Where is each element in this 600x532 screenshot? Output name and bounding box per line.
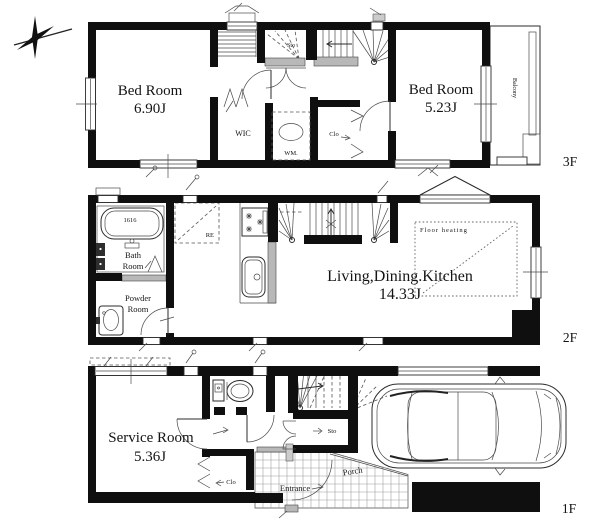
floor-plan-canvas: Balcony Sto bbox=[0, 0, 600, 532]
powder-sink-icon bbox=[95, 306, 123, 335]
floor-label-2f: 2F bbox=[563, 330, 578, 345]
entrance-label: Entrance bbox=[280, 483, 310, 493]
floor-label-3f: 3F bbox=[563, 154, 578, 169]
washing-machine-icon: WM. bbox=[272, 112, 310, 160]
bath-room-label-2: Room bbox=[123, 261, 144, 271]
floor-plan-image: Balcony Sto bbox=[0, 0, 600, 532]
refrigerator-space: RE bbox=[175, 203, 219, 243]
porch-label: Porch bbox=[342, 464, 364, 477]
door-swing bbox=[224, 68, 390, 158]
floor-2f-plan: 1616 RE bbox=[88, 165, 578, 351]
closet-label-3f: Clo bbox=[329, 131, 338, 138]
closet-label-1f: Clo bbox=[226, 479, 235, 486]
floor-label-1f: 1F bbox=[562, 501, 577, 516]
floor-1f-plan: Service Room 5.36J Clo Sto Entrance Porc… bbox=[88, 350, 577, 518]
storage-label-3f: Sto bbox=[287, 43, 295, 49]
bathtub-size-label: 1616 bbox=[124, 217, 138, 224]
washing-machine-label: WM. bbox=[284, 150, 298, 157]
north-arrow-icon bbox=[14, 16, 72, 59]
toilet-icon bbox=[213, 380, 253, 402]
service-room-size: 5.36J bbox=[134, 449, 166, 465]
floor-heating-label: Floor heating bbox=[420, 227, 468, 234]
refrigerator-label: RE bbox=[206, 232, 214, 239]
storage-sto-3f: Sto bbox=[267, 30, 299, 59]
powder-room-label-1: Powder bbox=[125, 293, 151, 303]
bedroom-right-name: Bed Room bbox=[409, 82, 474, 98]
balcony: Balcony bbox=[490, 26, 540, 165]
bath-room-label-1: Bath bbox=[125, 250, 142, 260]
bedroom-left-size: 6.90J bbox=[134, 101, 166, 117]
storage-label-1f: Sto bbox=[328, 428, 337, 435]
stairs-3f bbox=[265, 30, 393, 66]
stove-icon bbox=[242, 208, 268, 236]
wic-label: WIC bbox=[235, 129, 251, 138]
stairs-1f bbox=[291, 370, 340, 411]
bedroom-right-size: 5.23J bbox=[425, 100, 457, 116]
floor-3f-plan: Balcony Sto bbox=[76, 3, 578, 178]
loft-ladder bbox=[214, 30, 256, 57]
bedroom-left-name: Bed Room bbox=[118, 83, 183, 99]
powder-room-label-2: Room bbox=[128, 304, 149, 314]
ldk-size: 14.33J bbox=[379, 286, 421, 303]
stairs-2f bbox=[279, 203, 389, 244]
balcony-label: Balcony bbox=[511, 78, 517, 98]
service-room-name: Service Room bbox=[108, 430, 194, 446]
ldk-name: Living,Dining.Kitchen bbox=[327, 268, 473, 285]
